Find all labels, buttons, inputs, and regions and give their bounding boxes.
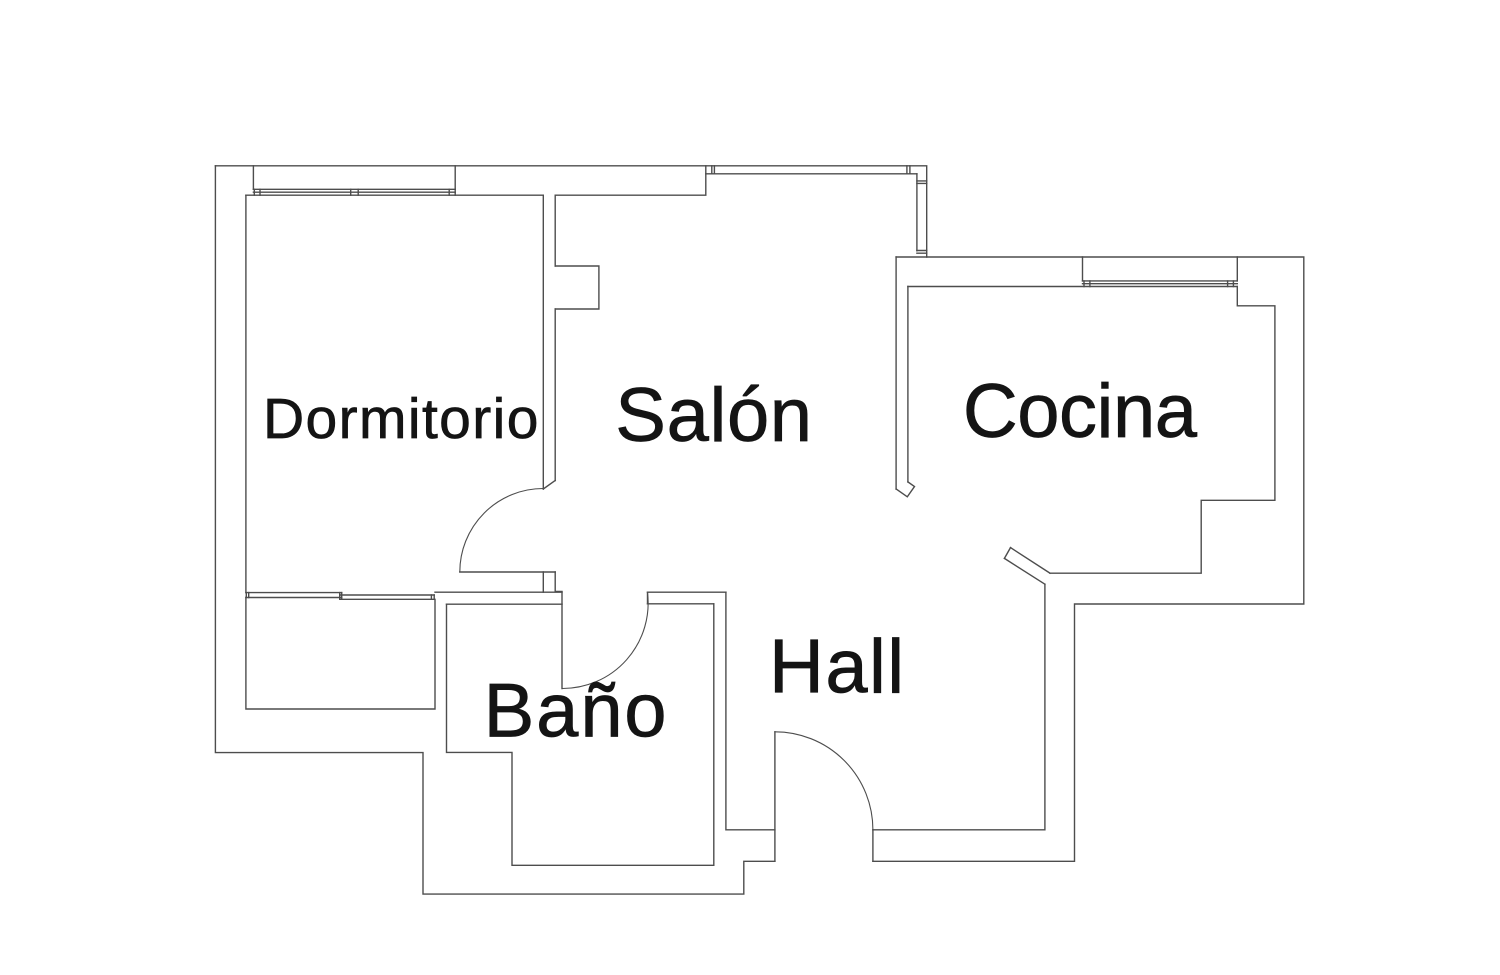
svg-text:Hall: Hall [769, 625, 906, 710]
svg-text:Cocina: Cocina [963, 369, 1198, 454]
svg-text:Dormitorio: Dormitorio [263, 387, 540, 451]
svg-text:Baño: Baño [484, 669, 669, 754]
svg-text:Salón: Salón [615, 373, 812, 458]
